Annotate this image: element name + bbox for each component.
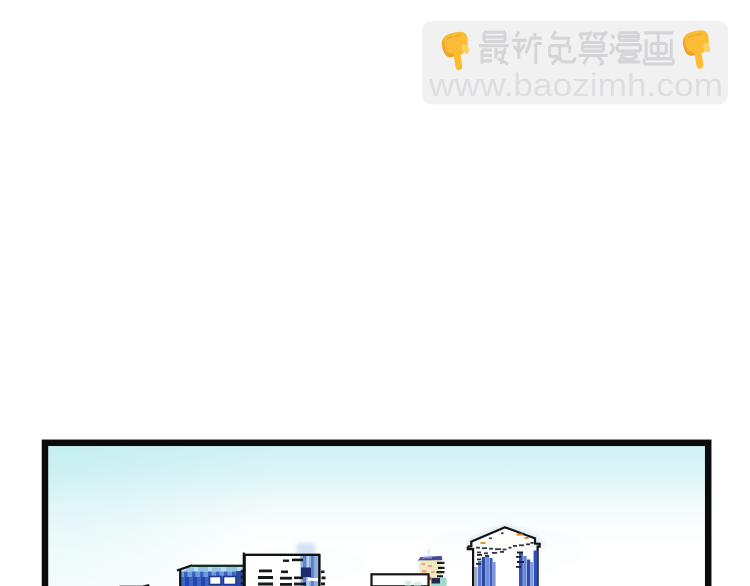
svg-text:www.baozimh.com: www.baozimh.com bbox=[428, 67, 723, 103]
